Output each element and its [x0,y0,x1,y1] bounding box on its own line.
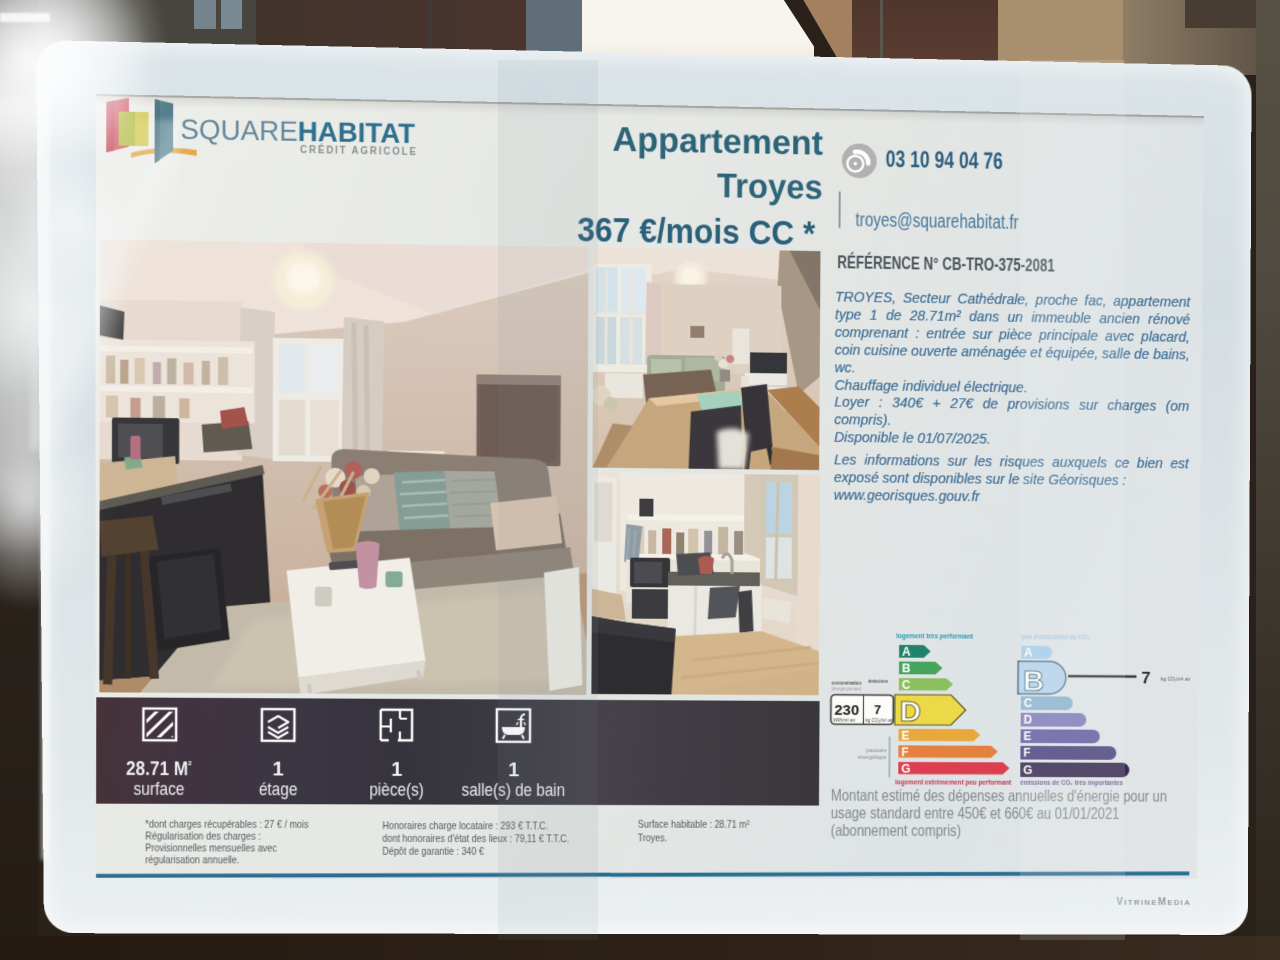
svg-text:C: C [902,678,911,691]
svg-text:kWh/m².an: kWh/m².an [833,718,855,723]
svg-text:7: 7 [1141,668,1150,687]
svg-text:D: D [900,695,922,728]
svg-text:G: G [901,762,910,775]
svg-text:A: A [902,645,911,658]
svg-text:logement très performant: logement très performant [896,631,973,640]
svg-text:émissions: émissions [868,679,888,685]
svg-text:230: 230 [834,702,859,718]
svg-text:F: F [901,746,909,759]
svg-text:B: B [902,662,911,675]
svg-text:énergétique: énergétique [858,755,887,761]
svg-text:passoire: passoire [866,748,887,754]
svg-text:kg CO₂/m².an: kg CO₂/m².an [1161,677,1191,683]
svg-text:7: 7 [874,703,881,717]
svg-text:logement extrêmement peu perfo: logement extrêmement peu performant [895,778,1011,787]
svg-text:E: E [901,729,909,742]
svg-text:(énergie primaire): (énergie primaire) [832,687,862,692]
svg-text:kg CO₂/m².an: kg CO₂/m².an [866,718,894,723]
